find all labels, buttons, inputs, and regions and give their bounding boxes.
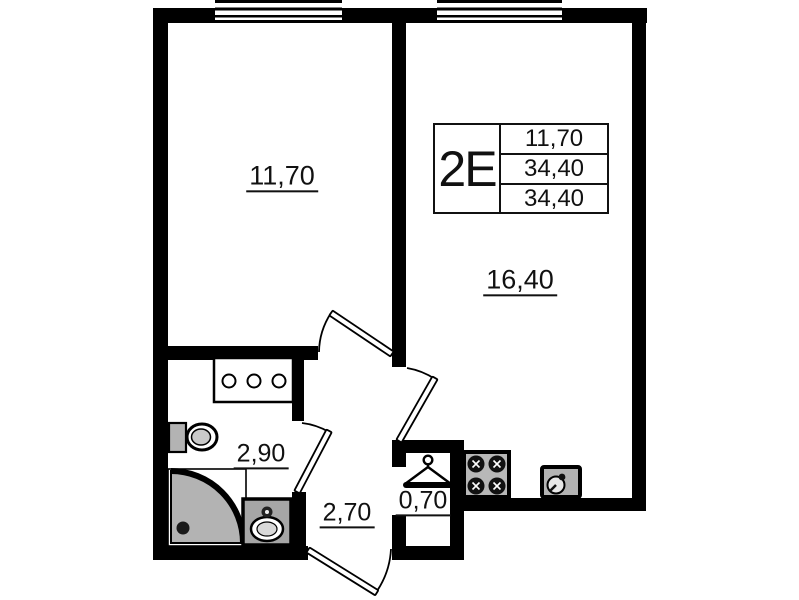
- wall-closet-bottom: [392, 546, 464, 560]
- closet-area-label: 0,70: [396, 487, 451, 516]
- washbasin-icon: [243, 499, 291, 545]
- wall-room-divider: [392, 23, 406, 367]
- unit-area-row-1: 11,70: [501, 125, 607, 155]
- wall-kitchen-bottom: [450, 498, 646, 511]
- kitchen-living-area-label: 16,40: [483, 265, 557, 296]
- floor-plan: 11,70 16,40 2,90 2,70 0,70 2Е 11,70 34,4…: [0, 0, 799, 600]
- bathroom-area-label: 2,90: [234, 440, 289, 469]
- clothes-hanger-icon: [403, 456, 453, 488]
- stove-icon: [464, 452, 509, 497]
- hallway-area-label: 2,70: [320, 499, 375, 528]
- window-bedroom-icon: [215, 0, 342, 23]
- unit-area-row-3: 34,40: [501, 185, 607, 213]
- window-living-icon: [437, 0, 562, 23]
- vanity-cabinet-icon: [214, 358, 293, 402]
- unit-area-values: 11,70 34,40 34,40: [501, 125, 607, 212]
- kitchen-sink-icon: [542, 467, 580, 497]
- wall-left: [153, 8, 168, 560]
- unit-area-row-2: 34,40: [501, 155, 607, 185]
- toilet-icon: [169, 423, 217, 452]
- wall-bottom-left: [153, 546, 308, 560]
- shower-cabin-icon: [168, 469, 246, 546]
- unit-type-label: 2Е: [435, 125, 501, 212]
- door-entrance: [306, 547, 391, 595]
- door-bedroom: [319, 311, 394, 357]
- door-kitchen-living: [396, 368, 437, 442]
- door-bathroom: [294, 423, 331, 493]
- bedroom-area-label: 11,70: [246, 161, 318, 192]
- unit-info-table: 2Е 11,70 34,40 34,40: [433, 123, 609, 214]
- wall-right: [632, 8, 646, 511]
